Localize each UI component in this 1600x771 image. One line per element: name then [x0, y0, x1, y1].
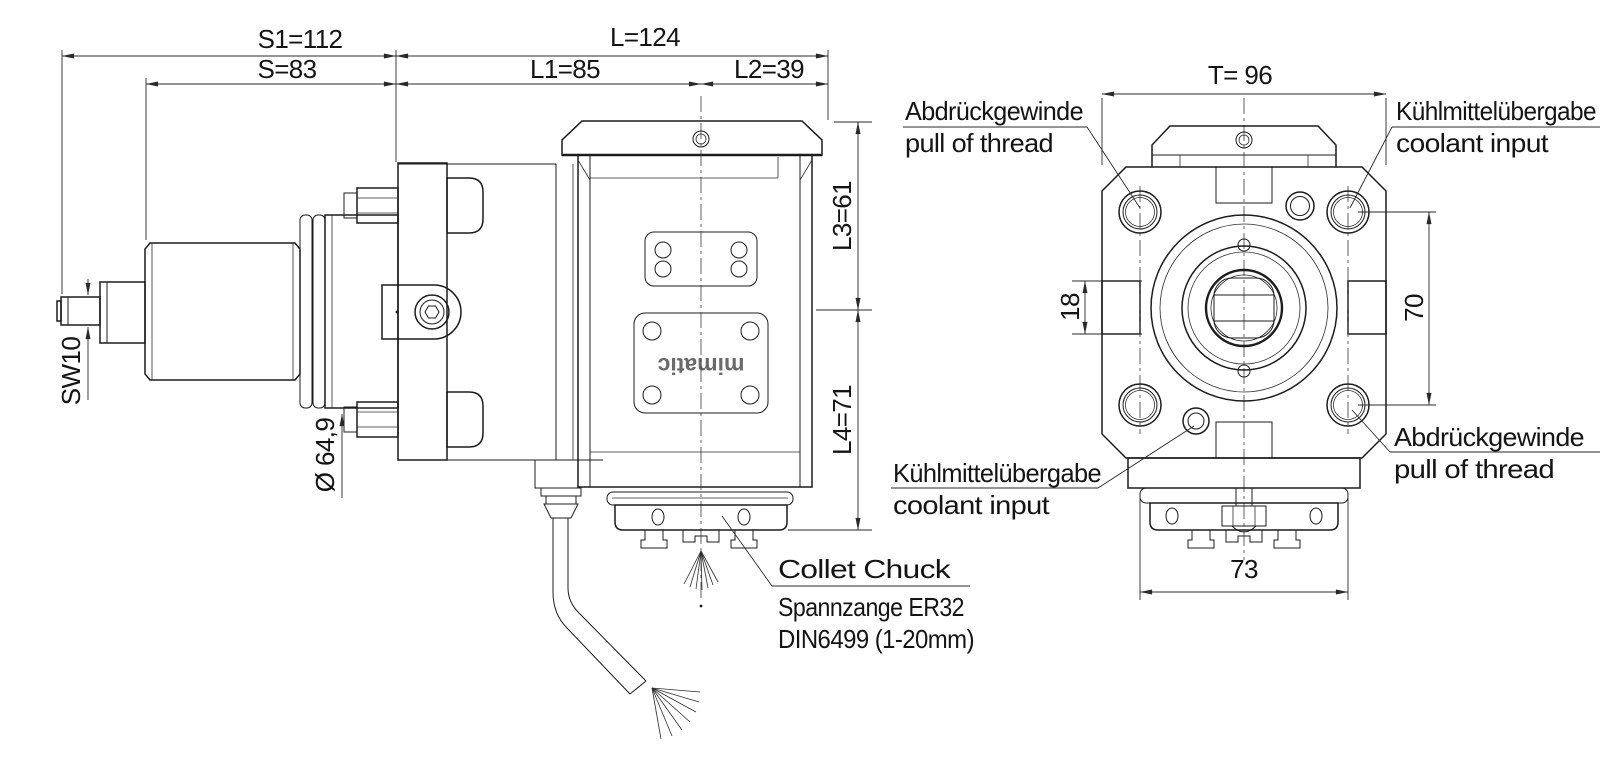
- coolant-spray-hose: [652, 688, 700, 739]
- dim-l2: L2=39: [734, 54, 804, 84]
- top-dimensions: S1=112 L=124 S=83 L1=85 L2=39: [62, 22, 828, 294]
- dim-l1: L1=85: [530, 54, 600, 84]
- label-coolant-input-tr: coolant input: [1396, 128, 1549, 158]
- dim-sw10: SW10: [56, 337, 86, 406]
- dim-s1: S1=112: [258, 24, 343, 54]
- dim-70-group: 70: [1358, 212, 1436, 405]
- head-body-front: [1102, 98, 1386, 560]
- output-shaft: SW10: [56, 279, 145, 405]
- label-din6499: DIN6499 (1-20mm): [778, 624, 974, 654]
- label-coolant-top-right: Kühlmittelübergabe coolant input: [1350, 96, 1600, 208]
- front-view: T= 96: [891, 60, 1600, 600]
- hole-small-top: [1286, 192, 1314, 220]
- left-key-tab: [1102, 281, 1140, 334]
- dim-l4: L4=71: [827, 385, 857, 455]
- technical-drawing-page: S1=112 L=124 S=83 L1=85 L2=39 SW10: [0, 0, 1600, 771]
- coolant-hose: [535, 460, 700, 739]
- motor-housing: [145, 215, 398, 408]
- height-dimensions: L3=61 L4=71: [788, 122, 872, 530]
- dim-l: L=124: [610, 22, 680, 52]
- dim-73: 73: [1230, 554, 1258, 584]
- dim-70: 70: [1399, 294, 1429, 322]
- dim-t: T= 96: [1208, 60, 1272, 90]
- hole-top-left: [1119, 191, 1161, 233]
- label-pull-off-top-left: Abdrückgewinde pull of thread: [903, 96, 1140, 208]
- label-pull-off-bottom-right: Abdrückgewinde pull of thread: [1352, 410, 1600, 484]
- dim-18-group: 18: [1055, 281, 1142, 334]
- clamp-studs: [344, 188, 398, 437]
- label-pull-of-thread-br: pull of thread: [1394, 454, 1554, 484]
- label-abdrueckgewinde-tl: Abdrückgewinde: [905, 96, 1083, 126]
- dim-l3: L3=61: [827, 181, 857, 251]
- dim-s: S=83: [257, 54, 316, 84]
- label-coolant-bottom-left: Kühlmittelübergabe coolant input: [891, 426, 1194, 520]
- label-spannzange: Spannzange ER32: [778, 592, 964, 622]
- angle-head-drawing: S1=112 L=124 S=83 L1=85 L2=39 SW10: [0, 0, 1600, 771]
- dim-dia: Ø 64,9: [310, 418, 340, 493]
- label-pull-of-thread-tl: pull of thread: [905, 128, 1053, 158]
- collet-chuck-side: [607, 492, 793, 590]
- label-kuehlmittel-tr: Kühlmittelübergabe: [1396, 96, 1596, 126]
- dim-18: 18: [1055, 293, 1085, 321]
- label-collet-chuck: Collet Chuck: [778, 554, 952, 584]
- right-key-tab: [1348, 281, 1386, 334]
- label-coolant-input-bl: coolant input: [893, 490, 1051, 520]
- label-kuehlmittel-bl: Kühlmittelübergabe: [893, 458, 1101, 488]
- label-abdrueckgewinde-br: Abdrückgewinde: [1394, 422, 1584, 452]
- side-view: S1=112 L=124 S=83 L1=85 L2=39 SW10: [56, 22, 974, 739]
- diameter-dimension: Ø 64,9: [310, 414, 342, 498]
- clamp-bracket: [382, 163, 603, 460]
- collet-chuck-label: Collet Chuck Spannzange ER32 DIN6499 (1-…: [722, 516, 974, 654]
